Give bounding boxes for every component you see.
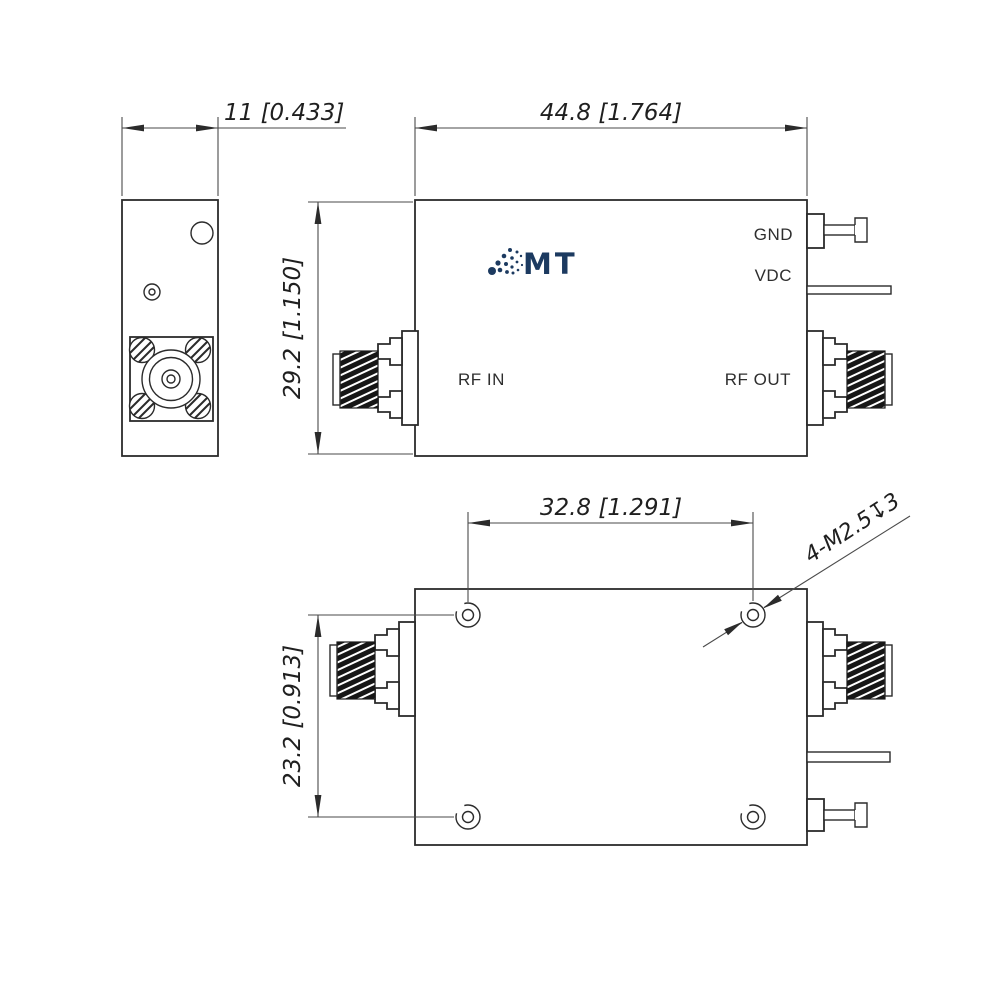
technical-drawing-canvas: MT GND VDC RF IN RF OUT [0,0,1000,1000]
gnd-block [807,214,824,248]
sma-connector-rf-in-bottom [330,622,415,716]
connector-plate [807,331,823,425]
connector-thread [847,351,885,408]
hole-bore [463,610,474,621]
connector-tip [330,645,337,696]
front-view: MT GND VDC RF IN RF OUT [333,200,892,456]
side-view [122,200,218,456]
dimension-arrow [315,615,322,637]
vdc-pin-front [807,286,891,294]
dimension-text: 23.2 [0.913] [280,645,306,787]
bottom-view [330,589,892,845]
connector-hex-tab [375,629,399,656]
gnd-pin-end-cap [855,803,867,827]
dimension-arrow [731,520,753,527]
connector-tip [885,354,892,405]
gnd-terminal-front [807,214,867,248]
sma-connector-rf-out-bottom [807,622,892,716]
dimension-side-width: 11 [0.433] [122,100,346,196]
logo-text: MT [523,247,578,281]
side-view-small-hole-inner [149,289,155,295]
hole-bore [748,610,759,621]
front-view-body [415,200,807,456]
dimension-arrow [122,125,144,132]
connector-thread [340,351,378,408]
dimension-text: 11 [0.433] [224,100,344,126]
connector-tip [885,645,892,696]
connector-pin-circle [167,375,175,383]
mounting-hole-bottom-left [456,805,480,829]
connector-hex-tab [823,629,847,656]
connector-hex-tab [823,338,847,365]
connector-hex-tab [378,338,402,365]
connector-plate [807,622,823,716]
rf-in-label: RF IN [458,370,505,389]
dimension-arrow [315,202,322,224]
dimension-hole-spacing-horizontal: 32.8 [1.291] [468,495,753,602]
sma-connector-rf-in-front [333,331,418,425]
connector-plate [402,331,418,425]
connector-hex-tab [378,391,402,418]
dimension-arrow [315,432,322,454]
gnd-label: GND [754,225,793,244]
mounting-hole-top-right [741,603,765,627]
connector-hex-tab [375,682,399,709]
dimension-arrow [785,125,807,132]
sma-connector-rf-out-front [807,331,892,425]
rf-amplifier-outline-drawing: MT GND VDC RF IN RF OUT [0,0,1000,1000]
mounting-hole-bottom-right [741,805,765,829]
coax-connector-face [142,350,200,408]
dimension-text: 32.8 [1.291] [540,495,682,521]
vdc-pin-bottom [807,752,890,762]
connector-thread [847,642,885,699]
vdc-label: VDC [755,266,792,285]
connector-tip [333,354,340,405]
connector-plate [399,622,415,716]
dimension-arrow [196,125,218,132]
mounting-hole-top-left [456,603,480,627]
dimension-text: 44.8 [1.764] [540,100,682,126]
gnd-pin [824,810,855,820]
dimension-arrow [315,795,322,817]
dimension-front-width: 44.8 [1.764] [415,100,807,196]
connector-thread [337,642,375,699]
side-view-feedthrough-hole [191,222,213,244]
connector-hex-tab [823,682,847,709]
gnd-terminal-bottom [807,799,867,831]
dimension-arrow [468,520,490,527]
hole-bore [463,812,474,823]
gnd-pin [824,225,855,235]
connector-hex-tab [823,391,847,418]
dimension-text: 29.2 [1.150] [280,257,306,399]
rf-out-label: RF OUT [725,370,791,389]
gnd-block [807,799,824,831]
dimension-arrow [415,125,437,132]
gnd-pin-end-cap [855,218,867,242]
hole-bore [748,812,759,823]
